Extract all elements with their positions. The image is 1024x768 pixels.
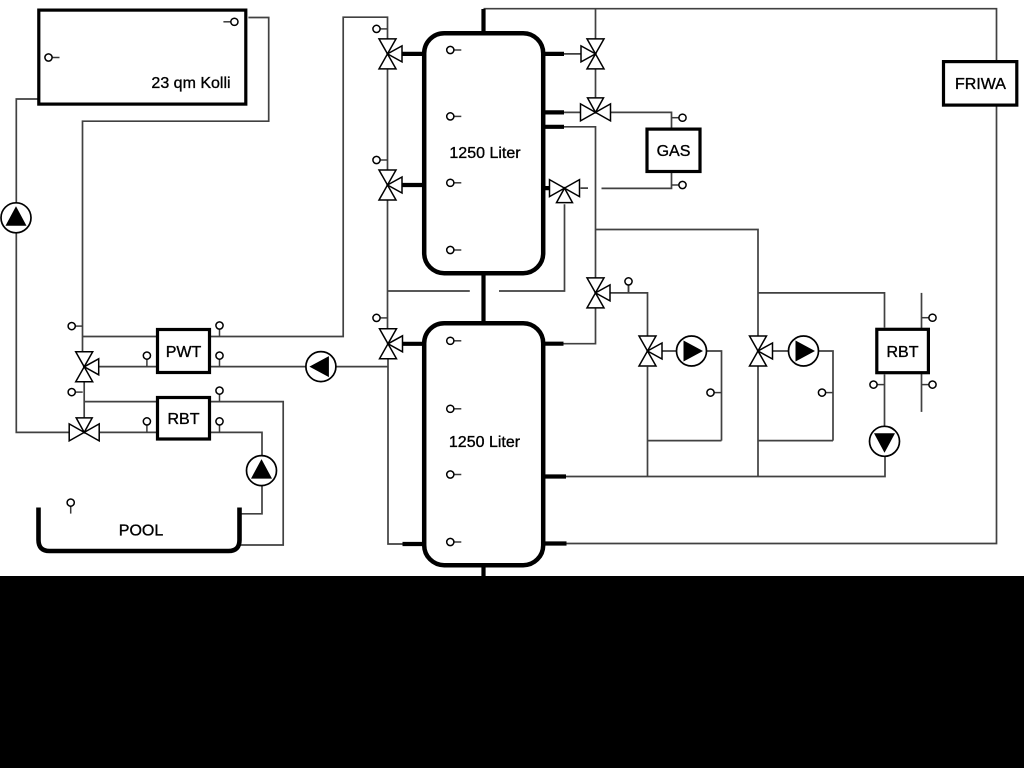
svg-text:RBT: RBT — [887, 344, 919, 361]
svg-text:1250 Liter: 1250 Liter — [449, 434, 521, 451]
svg-text:POOL: POOL — [119, 523, 164, 540]
svg-text:FRIWA: FRIWA — [955, 76, 1006, 93]
svg-text:PWT: PWT — [166, 344, 202, 361]
svg-text:23 qm Kolli: 23 qm Kolli — [151, 75, 230, 92]
svg-text:RBT: RBT — [168, 411, 200, 428]
svg-text:GAS: GAS — [657, 143, 691, 160]
svg-text:1250 Liter: 1250 Liter — [449, 145, 521, 162]
